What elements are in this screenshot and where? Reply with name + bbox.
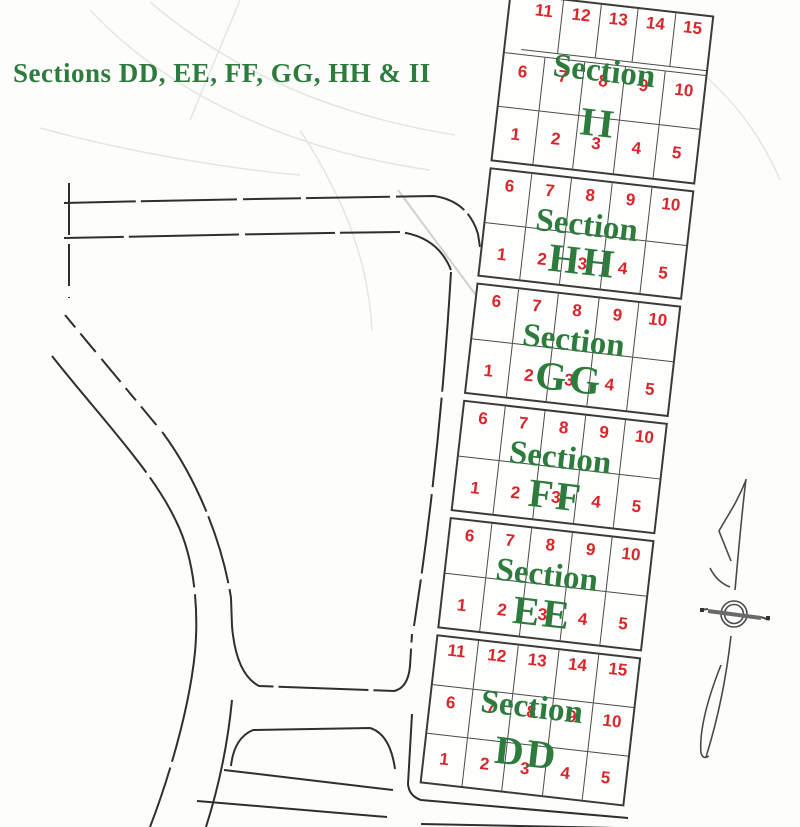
plot-number: 5: [617, 615, 628, 633]
plot-number: 10: [674, 81, 695, 100]
plot-cell-ee-3: 3: [519, 582, 565, 640]
compass-rose-icon: [700, 479, 770, 757]
section-ff: 67891012345SectionFF: [451, 400, 668, 535]
plot-cell-dd-10: 10: [588, 703, 634, 755]
plot-number: 6: [491, 292, 502, 310]
page-title: Sections DD, EE, FF, GG, HH & II: [13, 58, 431, 89]
plot-number: 8: [558, 419, 569, 437]
plot-cell-gg-6: 6: [472, 285, 517, 343]
plot-cell-ii-14: 14: [632, 9, 675, 66]
plot-cell-ii-7: 7: [538, 58, 584, 115]
plot-cell-dd-11: 11: [433, 636, 478, 688]
plot-number: 7: [557, 67, 568, 85]
plot-cell-ii-8: 8: [578, 62, 624, 119]
plot-number: 5: [631, 497, 642, 515]
plot-number: 12: [487, 646, 508, 665]
plot-cell-dd-7: 7: [467, 690, 513, 742]
road-top-inner: [64, 232, 451, 270]
plot-number: 11: [447, 641, 467, 660]
plot-cell-ff-1: 1: [453, 456, 498, 514]
plot-cell-ii-6: 6: [499, 53, 544, 110]
plot-number: 7: [518, 414, 529, 432]
plot-number: 8: [598, 72, 609, 90]
plot-cell-gg-2: 2: [505, 343, 551, 401]
plot-cell-ii-13: 13: [595, 5, 638, 62]
plot-number: 8: [545, 536, 556, 554]
plot-cell-ee-5: 5: [600, 592, 646, 650]
plot-cell-dd-4: 4: [542, 747, 588, 799]
plot-cell-ii-9: 9: [619, 67, 665, 124]
plot-number: 2: [550, 130, 561, 148]
plot-cell-hh-9: 9: [606, 183, 652, 240]
plot-cell-ii-1: 1: [493, 107, 538, 164]
plot-cell-dd-1: 1: [422, 734, 467, 786]
plot-cell-gg-8: 8: [552, 294, 598, 352]
plot-cell-hh-10: 10: [646, 188, 692, 245]
plot-cell-ff-3: 3: [532, 465, 578, 523]
plot-cell-gg-3: 3: [546, 348, 592, 406]
plot-number: 10: [661, 195, 682, 214]
plot-cell-ff-7: 7: [498, 406, 544, 464]
plot-cell-ff-5: 5: [613, 474, 659, 532]
plot-number: 3: [550, 488, 561, 506]
plot-cell-dd-8: 8: [507, 694, 553, 746]
plot-cell-ff-8: 8: [539, 411, 585, 469]
plot-number: 7: [485, 699, 496, 717]
plot-number: 12: [571, 6, 592, 25]
plot-cell-ff-10: 10: [619, 420, 665, 478]
plot-cell-ee-9: 9: [566, 533, 612, 591]
plot-cell-hh-6: 6: [486, 169, 531, 226]
plot-cell-ff-2: 2: [492, 461, 538, 519]
plot-number: 1: [439, 751, 450, 769]
plot-number: 7: [544, 181, 555, 199]
section-dd: 111213141567891012345SectionDD: [420, 634, 642, 806]
section-ee: 67891012345SectionEE: [437, 517, 654, 652]
section-hh: 67891012345SectionHH: [477, 167, 694, 300]
plot-cell-ee-10: 10: [606, 537, 652, 595]
plot-number: 4: [617, 259, 628, 277]
plot-number: 2: [496, 601, 507, 619]
road-inner-continuation: [206, 700, 232, 827]
plot-cell-hh-4: 4: [600, 236, 646, 293]
plot-number: 1: [483, 362, 494, 380]
plot-cell-gg-4: 4: [586, 352, 632, 410]
plot-cell-ff-9: 9: [579, 416, 625, 474]
plot-cell-ee-7: 7: [485, 524, 531, 582]
plot-number: 7: [531, 297, 542, 315]
plot-cell-dd-15: 15: [593, 655, 639, 707]
plot-number: 8: [526, 703, 537, 721]
plot-number: 5: [644, 380, 655, 398]
plot-cell-ff-4: 4: [573, 470, 619, 528]
plot-cell-ii-4: 4: [613, 121, 659, 178]
plot-number: 3: [519, 760, 530, 778]
road-curve-outer: [52, 356, 196, 827]
road-curve-inner-lower: [163, 433, 412, 691]
road-lower-north: [224, 770, 393, 790]
plot-number: 5: [600, 769, 611, 787]
plot-cell-dd-2: 2: [461, 738, 507, 790]
plot-cell-hh-3: 3: [559, 232, 605, 289]
plot-number: 3: [563, 371, 574, 389]
plot-number: 3: [537, 605, 548, 623]
plot-cell-hh-5: 5: [640, 241, 686, 298]
plot-cell-gg-5: 5: [626, 357, 672, 415]
plot-number: 8: [571, 301, 582, 319]
plot-number: 5: [671, 144, 682, 162]
faint-corner-line: [398, 190, 478, 298]
plot-number: 5: [657, 264, 668, 282]
plot-number: 15: [682, 18, 703, 37]
plot-cell-gg-7: 7: [512, 289, 558, 347]
plot-number: 4: [631, 139, 642, 157]
plot-number: 2: [523, 366, 534, 384]
plot-cell-hh-1: 1: [479, 223, 524, 280]
plot-cell-ii-2: 2: [532, 111, 578, 168]
plot-cell-ii-15: 15: [669, 13, 712, 70]
plot-cell-dd-5: 5: [582, 752, 628, 804]
plot-number: 6: [504, 177, 515, 195]
plot-number: 10: [647, 310, 668, 329]
plot-cell-ee-1: 1: [439, 573, 484, 631]
plot-cell-ii-12: 12: [557, 0, 600, 57]
plot-cell-dd-6: 6: [427, 685, 472, 737]
plot-number: 1: [469, 479, 480, 497]
plot-number: 14: [567, 655, 588, 674]
plot-number: 9: [566, 708, 577, 726]
road-block-top: [231, 728, 395, 769]
plot-cell-dd-12: 12: [472, 641, 518, 693]
plot-number: 6: [477, 409, 488, 427]
plot-cell-ii-5: 5: [653, 125, 699, 182]
plot-cell-gg-9: 9: [592, 298, 638, 356]
plot-number: 6: [445, 694, 456, 712]
plot-number: 4: [590, 493, 601, 511]
plot-cell-ff-6: 6: [459, 402, 504, 460]
plot-number: 2: [510, 484, 521, 502]
plot-number: 13: [608, 10, 629, 29]
plot-cell-ii-10: 10: [659, 71, 705, 128]
plot-number: 1: [496, 245, 507, 263]
plot-number: 10: [621, 545, 642, 564]
plat-map-page: { "title": "Sections DD, EE, FF, GG, HH …: [0, 0, 800, 827]
plot-number: 2: [536, 250, 547, 268]
plot-number: 4: [577, 610, 588, 628]
plot-number: 10: [634, 427, 655, 446]
plot-cell-dd-9: 9: [547, 699, 593, 751]
plot-number: 15: [608, 660, 629, 679]
plot-number: 9: [585, 540, 596, 558]
plot-number: 4: [604, 376, 615, 394]
plot-cell-hh-7: 7: [525, 174, 571, 231]
plot-cell-hh-8: 8: [565, 178, 611, 235]
road-top-outer: [64, 196, 480, 247]
plot-cell-dd-3: 3: [501, 743, 547, 795]
plot-number: 8: [585, 186, 596, 204]
plot-number: 6: [517, 63, 528, 81]
plot-number: 11: [534, 2, 554, 21]
plot-number: 1: [456, 596, 467, 614]
plot-number: 4: [560, 765, 571, 783]
plot-number: 14: [645, 14, 666, 33]
plot-number: 9: [612, 306, 623, 324]
plot-number: 9: [638, 77, 649, 95]
plot-number: 13: [527, 651, 548, 670]
plot-number: 3: [590, 135, 601, 153]
road-lower-south: [197, 801, 387, 817]
plot-cell-ee-4: 4: [559, 587, 605, 645]
plot-number: 6: [464, 527, 475, 545]
plot-number: 9: [625, 191, 636, 209]
plot-number: 1: [510, 125, 521, 143]
plot-number: 7: [504, 531, 515, 549]
plot-cell-ii-3: 3: [572, 116, 618, 173]
plot-number: 10: [602, 712, 623, 731]
plot-number: 3: [577, 254, 588, 272]
plot-cell-ee-6: 6: [446, 519, 491, 577]
section-ii: 111213141567891012345SectionII: [490, 0, 714, 185]
plot-cell-ee-2: 2: [479, 578, 525, 636]
plot-cell-dd-13: 13: [513, 645, 559, 697]
plot-cell-ii-11: 11: [521, 0, 563, 53]
plot-number: 9: [598, 423, 609, 441]
plot-cell-ee-8: 8: [525, 528, 571, 586]
plot-cell-dd-14: 14: [553, 650, 599, 702]
section-gg: 67891012345SectionGG: [464, 282, 681, 417]
road-curve-inner-upper: [65, 315, 163, 433]
plot-cell-gg-1: 1: [466, 339, 511, 397]
plot-number: 2: [479, 755, 490, 773]
plot-cell-gg-10: 10: [633, 303, 679, 361]
plot-cell-hh-2: 2: [519, 227, 565, 284]
